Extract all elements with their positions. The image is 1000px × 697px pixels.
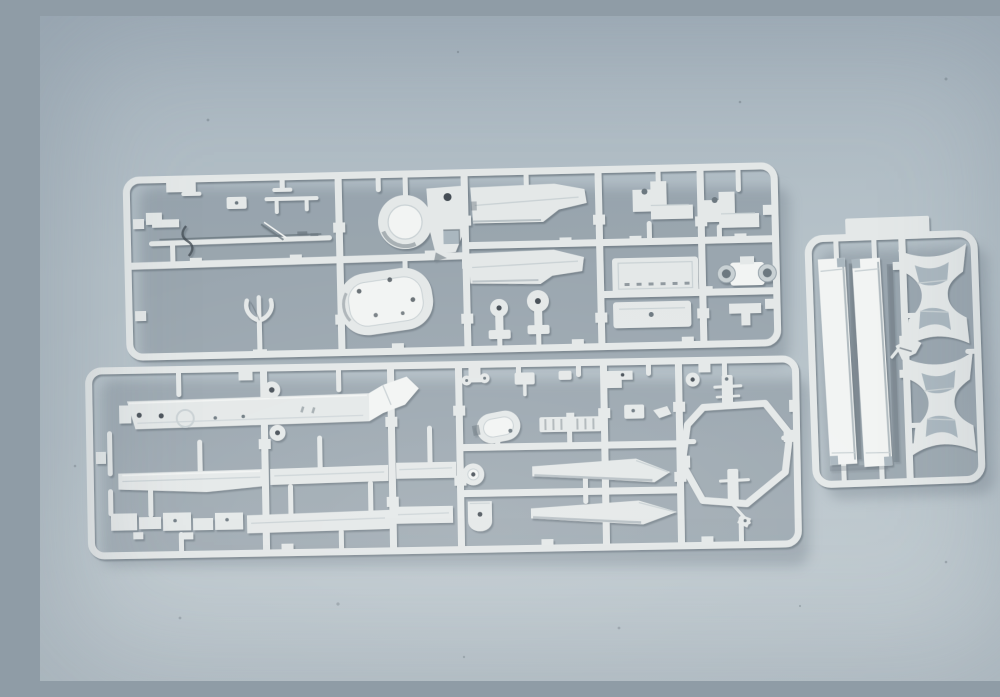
part-ribbed-panel-1: [612, 256, 699, 294]
part-hull-strip-2r: [396, 462, 456, 479]
part-small-fitting-2: [558, 371, 571, 380]
part-u-shape: [468, 501, 493, 531]
part-small-box: [226, 197, 246, 209]
part-ribbed-panel-2: [613, 301, 692, 329]
photo-model-kit-sprues: Photograph of light grey injection-mould…: [40, 16, 1000, 681]
photo-canvas: [40, 16, 1000, 681]
part-hull-strip-3r: [395, 506, 453, 524]
